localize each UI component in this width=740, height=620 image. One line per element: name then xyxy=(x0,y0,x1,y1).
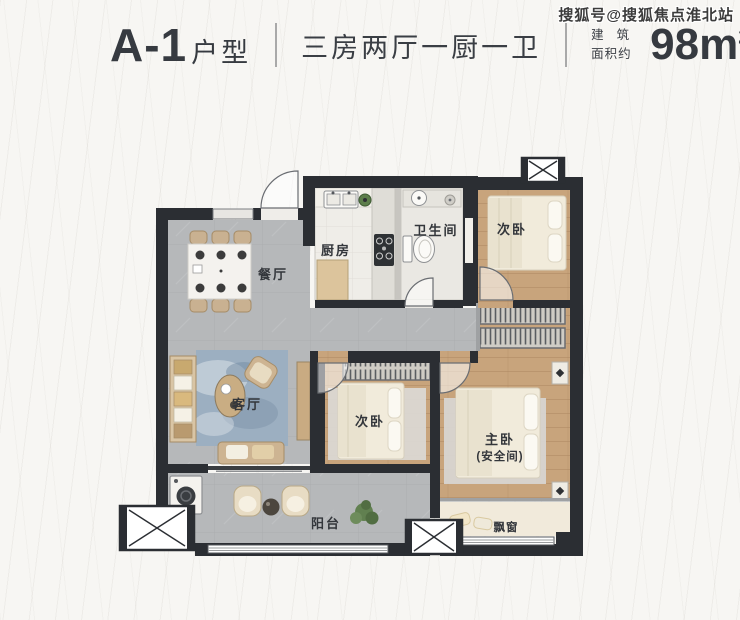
balcony-chair xyxy=(234,486,261,516)
sliding-door xyxy=(208,466,310,472)
balcony-label: 阳台 xyxy=(311,516,341,531)
floor-plan-svg: 餐厅 客厅 厨房 卫生间 次卧 次卧 主卧 (安全间) 阳台 飘窗 xyxy=(118,148,613,573)
hallway-floor xyxy=(310,308,476,351)
pillow xyxy=(388,388,401,418)
dining-table-set xyxy=(188,231,251,312)
header-divider xyxy=(275,23,277,67)
sofa xyxy=(170,356,196,442)
area-prefix: 建筑 面积约 xyxy=(591,26,642,65)
bench-sofa xyxy=(218,442,284,464)
area-block: 建筑 面积约 98m2 xyxy=(591,20,740,70)
bath-sink xyxy=(412,191,427,206)
stove xyxy=(374,234,394,266)
pillow xyxy=(388,421,401,451)
pillow xyxy=(548,201,562,229)
bedroom-middle-label: 次卧 xyxy=(355,414,385,429)
duct-notch xyxy=(465,218,473,263)
plant-pot xyxy=(359,194,371,206)
floor-plan: 餐厅 客厅 厨房 卫生间 次卧 次卧 主卧 (安全间) 阳台 飘窗 xyxy=(118,148,613,573)
balcony-chair xyxy=(282,486,309,516)
wardrobe xyxy=(480,328,565,348)
kitchen-sink xyxy=(324,191,358,208)
window-strip xyxy=(213,209,253,219)
area-prefix-top: 建筑 xyxy=(591,26,642,45)
toilet xyxy=(403,236,435,263)
balcony-table xyxy=(263,499,280,516)
shower-head xyxy=(445,195,455,205)
unit-name: A-1 xyxy=(110,18,187,72)
tv-cabinet xyxy=(297,362,310,440)
kitchen-lower-cabinet xyxy=(317,260,348,300)
area-prefix-bottom: 面积约 xyxy=(591,45,642,64)
dining-label: 餐厅 xyxy=(257,267,288,282)
entry-door xyxy=(261,171,298,208)
balcony-glazing xyxy=(208,545,388,553)
kitchen-bath-divider xyxy=(395,188,401,300)
nightstand xyxy=(552,482,568,500)
nightstand xyxy=(552,362,568,384)
bay-window-label: 飘窗 xyxy=(494,520,519,534)
header-divider xyxy=(565,23,567,67)
balcony-table-detail xyxy=(266,502,270,506)
pillow xyxy=(524,434,538,470)
window-bottom-left xyxy=(120,506,194,550)
window-top-right xyxy=(522,158,564,182)
layout-description: 三房两厅一厨一卫 xyxy=(301,26,541,65)
master-label: 主卧 xyxy=(485,432,515,447)
unit-type-label: 户型 xyxy=(191,31,251,70)
bathroom-label: 卫生间 xyxy=(413,223,458,238)
master-sub-label: (安全间) xyxy=(476,449,523,463)
watermark-text: 搜狐号@搜狐焦点淮北站 xyxy=(558,4,734,25)
kitchen-label: 厨房 xyxy=(321,243,351,258)
window-bottom-middle xyxy=(406,520,462,554)
area-value: 98m2 xyxy=(650,20,740,70)
pillow xyxy=(548,234,562,262)
living-label: 客厅 xyxy=(232,397,262,412)
pillow xyxy=(524,394,538,430)
bedroom-top-right-label: 次卧 xyxy=(497,222,527,237)
